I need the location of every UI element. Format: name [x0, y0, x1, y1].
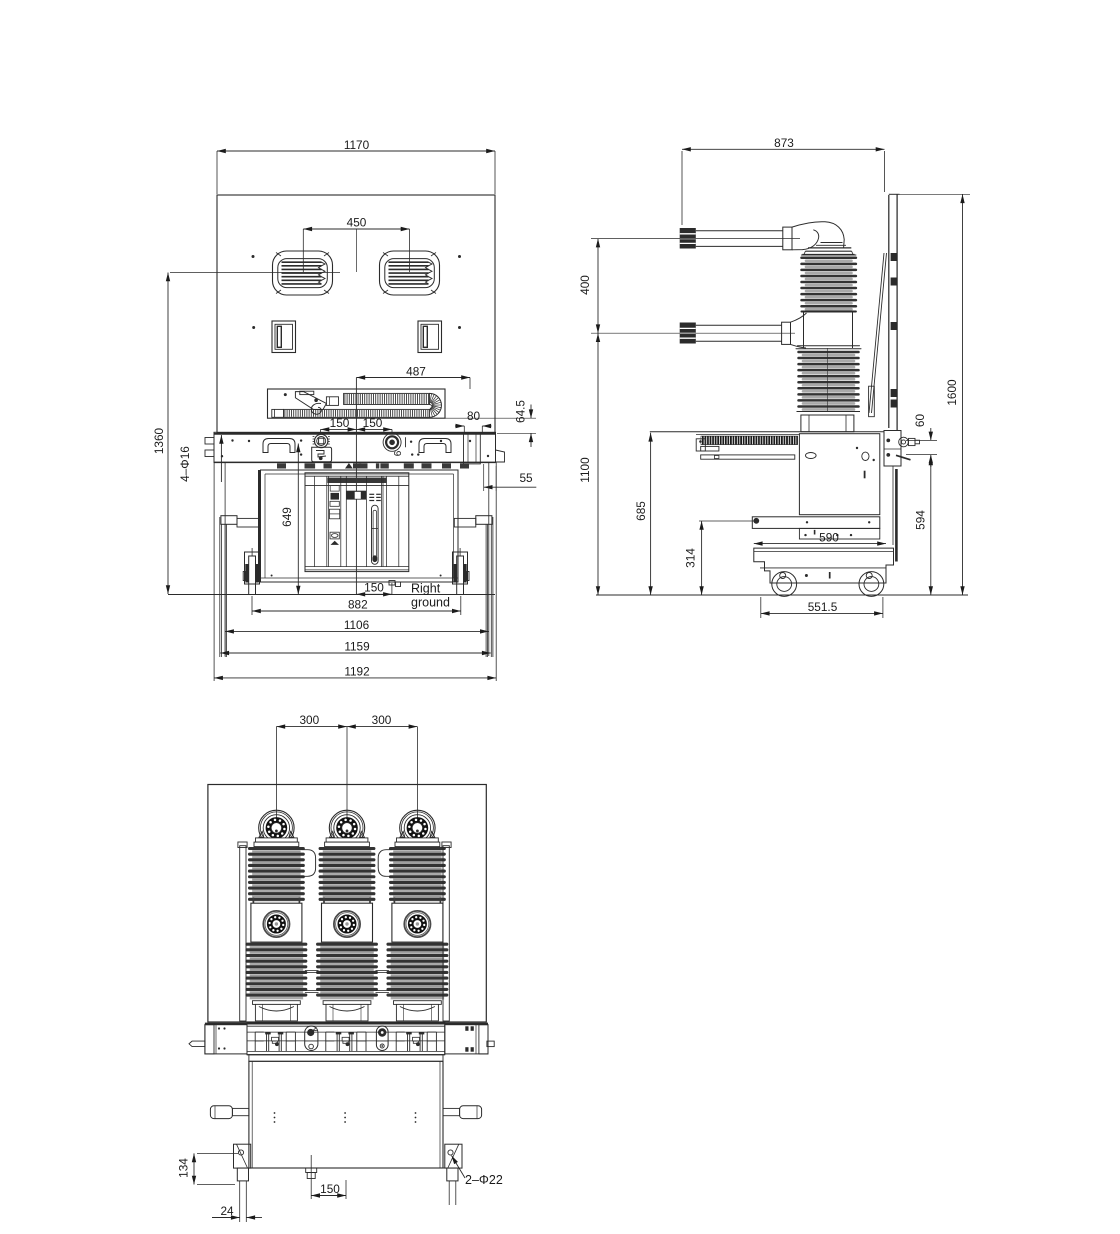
svg-text:2–Φ22: 2–Φ22: [465, 1173, 503, 1187]
svg-text:594: 594: [914, 510, 928, 530]
svg-text:649: 649: [280, 507, 294, 527]
svg-text:873: 873: [774, 136, 794, 150]
svg-text:300: 300: [372, 713, 392, 727]
svg-text:134: 134: [177, 1158, 191, 1178]
svg-text:314: 314: [684, 548, 698, 568]
svg-text:882: 882: [348, 598, 368, 612]
svg-text:150: 150: [320, 1182, 340, 1196]
svg-text:64.5: 64.5: [514, 400, 528, 423]
svg-text:685: 685: [634, 501, 648, 521]
svg-text:ground: ground: [411, 596, 450, 610]
svg-text:150: 150: [330, 416, 350, 430]
svg-text:1159: 1159: [344, 640, 369, 654]
svg-text:Right: Right: [411, 582, 441, 596]
svg-text:24: 24: [220, 1204, 234, 1218]
svg-text:400: 400: [578, 275, 592, 295]
svg-text:6: 6: [393, 450, 404, 456]
svg-text:1192: 1192: [344, 665, 369, 679]
svg-text:1106: 1106: [344, 618, 370, 632]
svg-text:80: 80: [467, 409, 481, 423]
svg-text:60: 60: [913, 414, 927, 428]
svg-text:55: 55: [519, 471, 533, 485]
svg-text:1360: 1360: [152, 427, 166, 454]
svg-text:150: 150: [363, 416, 383, 430]
svg-text:1100: 1100: [578, 457, 592, 483]
svg-text:551.5: 551.5: [808, 600, 838, 614]
svg-text:150: 150: [364, 581, 384, 595]
svg-text:590: 590: [819, 530, 839, 544]
svg-text:450: 450: [347, 216, 367, 230]
svg-text:1170: 1170: [344, 138, 370, 152]
svg-text:487: 487: [406, 364, 426, 378]
svg-text:1600: 1600: [945, 379, 959, 406]
svg-text:4–Φ16: 4–Φ16: [178, 446, 192, 482]
svg-text:300: 300: [299, 713, 319, 727]
